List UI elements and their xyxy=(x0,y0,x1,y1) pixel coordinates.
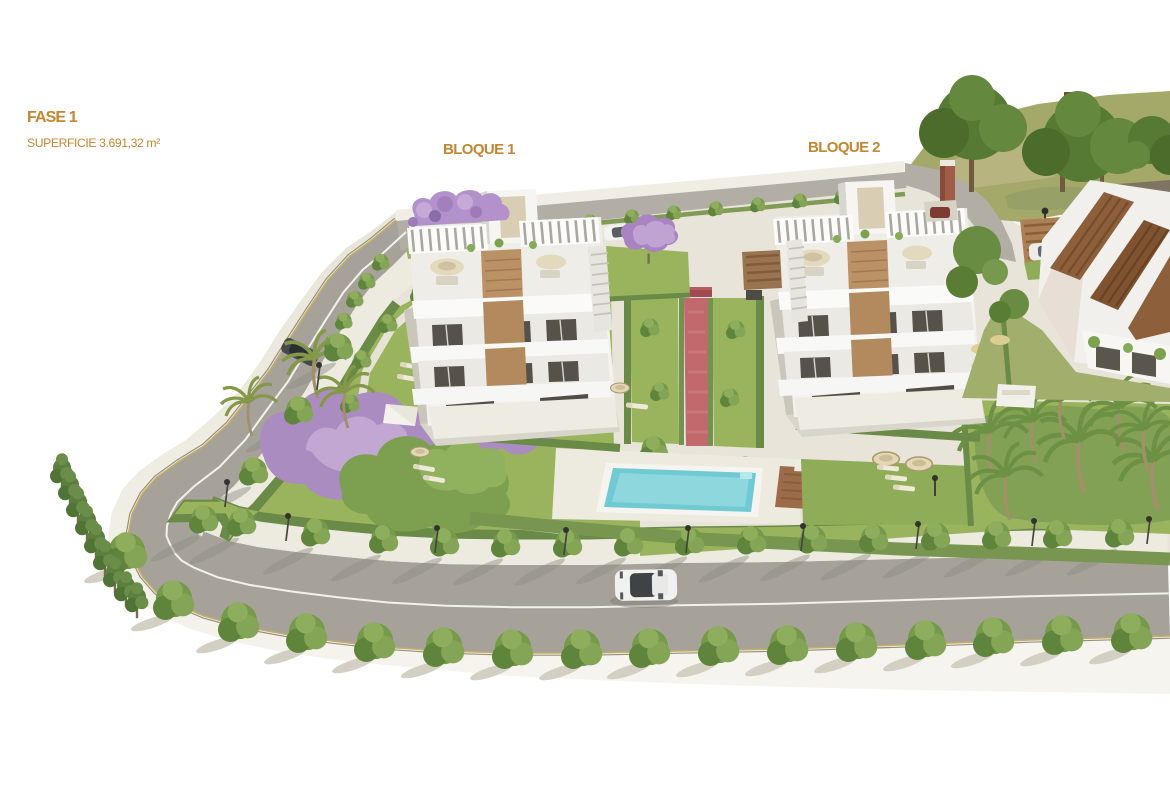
svg-text:BLOQUE 2: BLOQUE 2 xyxy=(808,139,880,156)
svg-text:FASE 1: FASE 1 xyxy=(27,109,78,126)
svg-text:BLOQUE 1: BLOQUE 1 xyxy=(443,141,515,158)
svg-text:SUPERFICIE 3.691,32 m²: SUPERFICIE 3.691,32 m² xyxy=(27,136,160,150)
